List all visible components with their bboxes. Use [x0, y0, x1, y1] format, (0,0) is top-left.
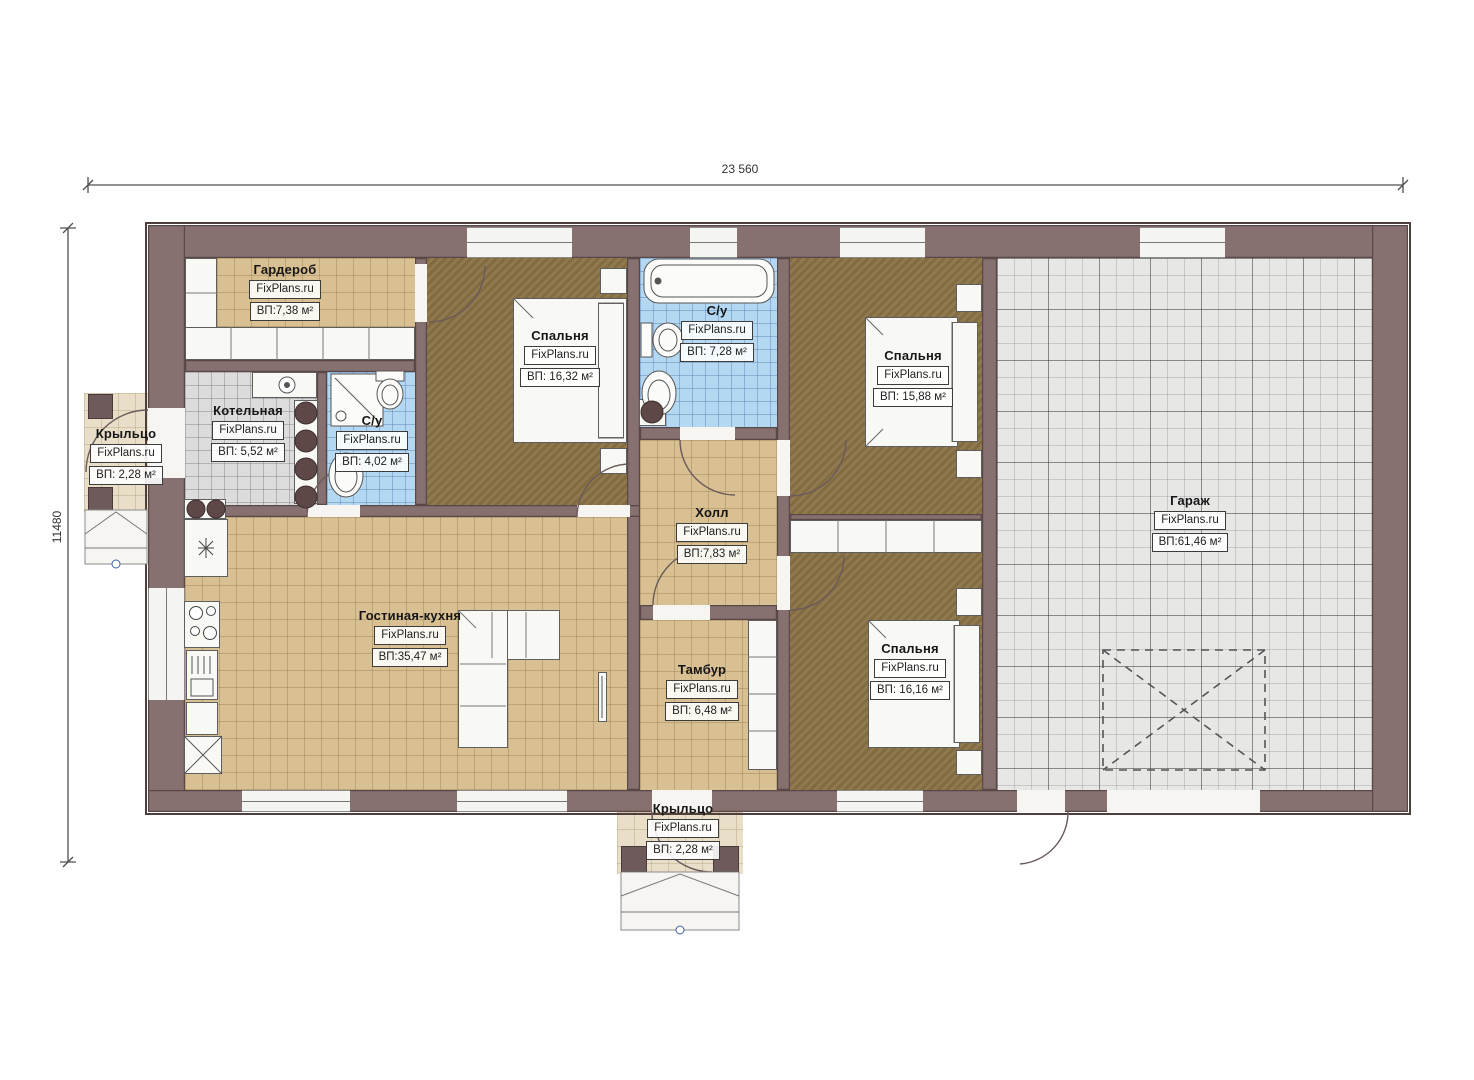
room-name: Гардероб: [210, 262, 360, 277]
room-name: С/у: [297, 413, 447, 428]
porch-left-post-top: [88, 394, 113, 419]
room-name: Крыльцо: [608, 801, 758, 816]
room-label-porch-left: Крыльцо FixPlans.ru ВП: 2,28 м²: [66, 426, 186, 485]
area-box: ВП: 16,16 м²: [870, 681, 950, 700]
door-opening-bedroom-main: [577, 505, 630, 517]
kitchen-counter-bottom: [186, 702, 218, 735]
window-left-kitchen: [148, 588, 185, 700]
window-bottom-bedroom: [837, 790, 923, 812]
window-top-1: [467, 227, 572, 258]
brand-box: FixPlans.ru: [874, 659, 946, 678]
wardrobe-closet-bottom: [185, 327, 415, 360]
wall-wardrobe-boiler: [185, 360, 415, 372]
kitchen-counter-top: [184, 519, 228, 577]
room-label-bedroom-right: Спальня FixPlans.ru ВП: 15,88 м²: [838, 348, 988, 407]
floor-lamp: [598, 672, 607, 722]
area-box: ВП: 6,48 м²: [665, 702, 739, 721]
porch-left-post-bottom: [88, 487, 113, 512]
room-label-living-kitchen: Гостиная-кухня FixPlans.ru ВП:35,47 м²: [325, 608, 495, 667]
nightstand-bottom-bottom: [956, 750, 982, 775]
brand-box: FixPlans.ru: [249, 280, 321, 299]
kitchen-fridge: [184, 736, 222, 774]
room-label-bedroom-main: Спальня FixPlans.ru ВП: 16,32 м²: [485, 328, 635, 387]
washing-machine-bath: [639, 399, 666, 426]
area-box: ВП: 16,32 м²: [520, 368, 600, 387]
area-box: ВП: 5,52 м²: [211, 443, 285, 462]
room-name: Гостиная-кухня: [325, 608, 495, 623]
area-box: ВП: 2,28 м²: [89, 466, 163, 485]
room-name: Крыльцо: [66, 426, 186, 441]
brand-box: FixPlans.ru: [676, 523, 748, 542]
kitchen-stove: [184, 601, 220, 648]
area-box: ВП: 7,28 м²: [680, 343, 754, 362]
door-opening-wardrobe: [415, 264, 427, 322]
wall-outer-right: [1372, 225, 1408, 812]
brand-box: FixPlans.ru: [681, 321, 753, 340]
window-top-2: [690, 227, 737, 258]
floor-plan-canvas: 23 560 11480: [0, 0, 1474, 1080]
brand-box: FixPlans.ru: [90, 444, 162, 463]
room-name: Тамбур: [627, 662, 777, 677]
nightstand-right-top: [956, 284, 982, 312]
door-arc-garage-entry: [1020, 812, 1068, 864]
nightstand-right-bottom: [956, 450, 982, 478]
window-top-3: [840, 227, 925, 258]
room-name: Спальня: [485, 328, 635, 343]
window-top-garage: [1140, 227, 1225, 258]
area-box: ВП: 4,02 м²: [335, 453, 409, 472]
area-box: ВП: 2,28 м²: [646, 841, 720, 860]
steps-bottom: [621, 872, 739, 934]
wall-living-top: [185, 505, 640, 517]
area-box: ВП:7,38 м²: [250, 302, 320, 321]
room-label-hall: Холл FixPlans.ru ВП:7,83 м²: [637, 505, 787, 564]
steps-left: [85, 510, 147, 568]
nightstand-main-top: [600, 268, 627, 294]
room-label-vestibule: Тамбур FixPlans.ru ВП: 6,48 м²: [627, 662, 777, 721]
area-box: ВП:35,47 м²: [372, 648, 449, 667]
door-opening-bedroom-bottom: [777, 556, 790, 610]
room-name: Спальня: [835, 641, 985, 656]
room-label-bathroom-small: С/у FixPlans.ru ВП: 4,02 м²: [297, 413, 447, 472]
brand-box: FixPlans.ru: [524, 346, 596, 365]
brand-box: FixPlans.ru: [1154, 511, 1226, 530]
area-box: ВП: 15,88 м²: [873, 388, 953, 407]
area-box: ВП:7,83 м²: [677, 545, 747, 564]
door-opening-boiler: [307, 505, 360, 517]
area-box: ВП:61,46 м²: [1152, 533, 1229, 552]
room-name: Холл: [637, 505, 787, 520]
brand-box: FixPlans.ru: [336, 431, 408, 450]
wardrobe-band-bedroom-bottom: [790, 520, 982, 553]
door-opening-vestibule: [653, 605, 710, 620]
wall-outer-left: [148, 225, 185, 812]
dimension-height-label: 11480: [50, 492, 64, 562]
room-label-wardrobe: Гардероб FixPlans.ru ВП:7,38 м²: [210, 262, 360, 321]
brand-box: FixPlans.ru: [877, 366, 949, 385]
garage-entry-door-opening: [1017, 790, 1065, 812]
room-label-porch-bottom: Крыльцо FixPlans.ru ВП: 2,28 м²: [608, 801, 758, 860]
nightstand-bottom-top: [956, 588, 982, 616]
door-opening-bathroom-main: [680, 427, 735, 440]
room-label-bedroom-bottom: Спальня FixPlans.ru ВП: 16,16 м²: [835, 641, 985, 700]
brand-box: FixPlans.ru: [647, 819, 719, 838]
brand-box: FixPlans.ru: [374, 626, 446, 645]
boiler-burner-box: [184, 499, 226, 519]
room-name: Гараж: [1115, 493, 1265, 508]
brand-box: FixPlans.ru: [666, 680, 738, 699]
window-bottom-1: [242, 790, 350, 812]
boiler-counter: [252, 372, 317, 398]
room-name: С/у: [642, 303, 792, 318]
dimension-width-label: 23 560: [660, 162, 820, 176]
garage-gate-opening: [1107, 790, 1260, 812]
window-bottom-2: [457, 790, 567, 812]
kitchen-oven: [186, 650, 218, 700]
nightstand-main-bottom: [600, 448, 627, 474]
room-name: Спальня: [838, 348, 988, 363]
room-label-garage: Гараж FixPlans.ru ВП:61,46 м²: [1115, 493, 1265, 552]
brand-box: FixPlans.ru: [212, 421, 284, 440]
wall-garage: [982, 258, 997, 790]
room-label-bathroom-main: С/у FixPlans.ru ВП: 7,28 м²: [642, 303, 792, 362]
door-opening-bedroom-right: [777, 440, 790, 496]
